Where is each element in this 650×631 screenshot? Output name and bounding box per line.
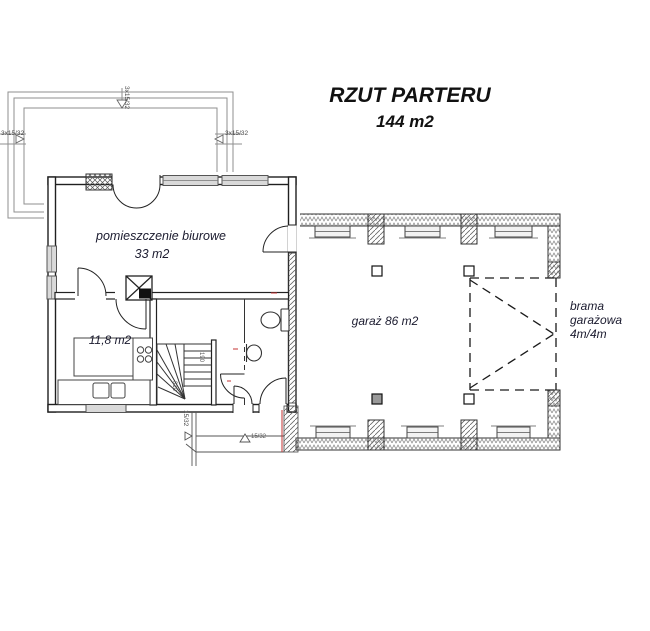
- garage-structure: [296, 214, 560, 450]
- terrace-steps-annotation-right: 3x15/32: [225, 130, 248, 137]
- stair-dimension-a: 190: [198, 352, 204, 370]
- level-marker-icon: [240, 434, 250, 442]
- office-room-label: pomieszczenie biurowe: [81, 229, 241, 243]
- gate-label-line3: 4m/4m: [570, 328, 646, 342]
- terrace-step-arrows: [16, 100, 223, 143]
- kitchen-room-area: 11,8 m2: [75, 334, 145, 348]
- stair-dimension-b: 310: [171, 381, 177, 399]
- arrow-left-icon: [215, 135, 223, 143]
- kitchen-sink-fixture: [93, 383, 109, 398]
- garage-wall-top: [296, 214, 560, 226]
- plan-title: RZUT PARTERU: [310, 84, 510, 108]
- entry-steps-annotation-side: 15/32: [182, 410, 189, 432]
- garage-room-label: garaż 86 m2: [330, 315, 440, 329]
- gate-label-line1: brama: [570, 300, 646, 314]
- gate-label-line2: garażowa: [570, 314, 646, 328]
- terrace-steps-annotation-top: 3x15/32: [123, 86, 130, 110]
- sink-fixture: [247, 344, 262, 362]
- floor-plan-canvas: RZUT PARTERU 144 m2 pomieszczenie biurow…: [0, 0, 650, 631]
- terrace-steps-annotation-left: 3x15/32: [1, 130, 24, 137]
- step-arrow-icon: [185, 432, 192, 440]
- entry-steps-annotation-front: 15/32: [251, 434, 266, 440]
- garage-wall-bottom: [296, 438, 560, 450]
- house-structure: [44, 172, 300, 416]
- garage-gate-label: brama garażowa 4m/4m: [570, 300, 646, 341]
- chimney-symbol: [86, 174, 112, 190]
- fireplace-symbol: [126, 276, 152, 300]
- shared-wall-hatch: [289, 253, 297, 403]
- office-room-area: 33 m2: [92, 247, 212, 261]
- plan-total-area: 144 m2: [330, 112, 480, 132]
